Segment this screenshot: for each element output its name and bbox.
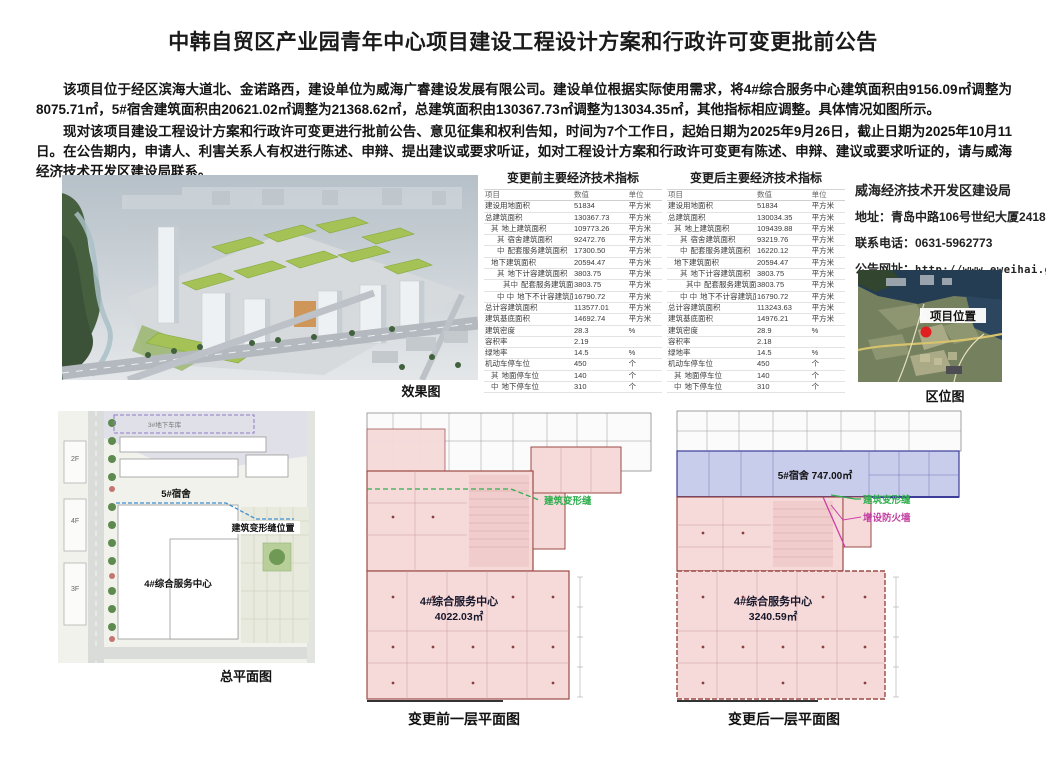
table-cell: 建筑基底面积 (667, 314, 756, 325)
table-title-after: 变更后主要经济技术指标 (667, 169, 845, 186)
table-row: 绿地率14.5% (484, 348, 662, 359)
table-row: 总计容建筑面积113577.01平方米 (484, 302, 662, 313)
siteplan-figure: 3#地下车库 2F 4F 3F 5#宿舍 (58, 411, 315, 663)
table-title-before: 变更前主要经济技术指标 (484, 169, 662, 186)
location-map-figure: 项目位置 (858, 270, 1002, 382)
table-cell: 建筑密度 (484, 325, 573, 336)
table-cell: 平方米 (628, 257, 662, 268)
table-before-body: 项目数值单位建设用地面积51834平方米总建筑面积130367.73平方米其地上… (484, 189, 662, 393)
table-cell: 中地下停车位 (484, 382, 573, 393)
joint-label-after: 建筑变形缝 (862, 494, 911, 506)
contact-department: 威海经济技术开发区建设局 (855, 180, 1043, 199)
table-cell: 平方米 (628, 269, 662, 280)
table-cell: 140 (756, 370, 811, 381)
table-cell: 16220.12 (756, 246, 811, 257)
table-cell: 28.3 (573, 325, 628, 336)
table-cell: 平方米 (628, 314, 662, 325)
table-cell: 310 (756, 382, 811, 393)
table-row: 绿地率14.5% (667, 348, 845, 359)
table-cell: 平方米 (628, 302, 662, 313)
project-location-label: 项目位置 (930, 309, 976, 323)
dorm-band-label: 5#宿舍 747.00㎡ (778, 469, 853, 482)
table-cell: 容积率 (484, 336, 573, 347)
table-cell: 其地上建筑面积 (484, 223, 573, 234)
siteplan-illustration: 3#地下车库 2F 4F 3F 5#宿舍 (58, 411, 315, 663)
service-center-area-after: 3240.59㎡ (749, 610, 798, 623)
location-map-illustration: 项目位置 (858, 270, 1002, 382)
service-center-area-before: 4022.03㎡ (435, 610, 484, 623)
table-row: 其地下计容建筑面积3803.75平方米 (484, 269, 662, 280)
table-row: 地下建筑面积20594.47平方米 (667, 257, 845, 268)
notice-paragraph-1: 该项目位于经区滨海大道北、金诺路西，建设单位为威海广睿建设发展有限公司。建设单位… (36, 80, 1012, 120)
table-cell: 2.19 (573, 336, 628, 347)
table-cell: % (811, 348, 845, 359)
table-cell: 113577.01 (573, 302, 628, 313)
table-cell: 建设用地面积 (484, 201, 573, 212)
table-row: 其宿舍建筑面积92472.76平方米 (484, 235, 662, 246)
table-cell: 109439.88 (756, 223, 811, 234)
table-cell: 51834 (756, 201, 811, 212)
table-cell: 个 (811, 382, 845, 393)
table-cell: 平方米 (811, 201, 845, 212)
table-cell: 130367.73 (573, 212, 628, 223)
table-row: 其地上建筑面积109773.26平方米 (484, 223, 662, 234)
table-cell: 平方米 (811, 291, 845, 302)
location-caption: 区位图 (905, 386, 985, 405)
table-cell: 其地下计容建筑面积 (667, 269, 756, 280)
table-cell: 平方米 (811, 212, 845, 223)
table-row: 其地上建筑面积109439.88平方米 (667, 223, 845, 234)
floorplan-after-caption: 变更后一层平面图 (709, 709, 859, 729)
table-cell: 14.5 (573, 348, 628, 359)
table-cell: 中地下停车位 (667, 382, 756, 393)
table-cell: 平方米 (811, 280, 845, 291)
table-row: 其中配套服务建筑面积3803.75平方米 (667, 280, 845, 291)
floorplan-after-figure: 5#宿舍 747.00㎡ (673, 407, 965, 707)
table-cell: 其地面停车位 (484, 370, 573, 381)
table-row: 其地下计容建筑面积3803.75平方米 (667, 269, 845, 280)
table-cell: 其地下计容建筑面积 (484, 269, 573, 280)
service-center-label-before: 4#综合服务中心 (420, 594, 498, 608)
table-cell: 109773.26 (573, 223, 628, 234)
table-cell: 130034.35 (756, 212, 811, 223)
siteplan-dorm-label: 5#宿舍 (161, 488, 191, 500)
table-cell: 中 中地下不计容建筑面积 (484, 291, 573, 302)
floorplan-before-illustration: 建筑变形缝 4#综合服务中心 4022.03㎡ (363, 407, 655, 707)
siteplan-center-label: 4#综合服务中心 (144, 578, 212, 590)
table-cell: 总建筑面积 (667, 212, 756, 223)
table-cell: 16790.72 (573, 291, 628, 302)
table-row: 中 中地下不计容建筑面积16790.72平方米 (484, 291, 662, 302)
table-cell: 92472.76 (573, 235, 628, 246)
service-center-label-after: 4#综合服务中心 (734, 594, 812, 608)
table-cell: 113243.63 (756, 302, 811, 313)
project-location-marker (921, 327, 932, 338)
notice-page: 中韩自贸区产业园青年中心项目建设工程设计方案和行政许可变更批前公告 该项目位于经… (0, 0, 1046, 767)
table-cell: 绿地率 (667, 348, 756, 359)
table-cell: 个 (628, 359, 662, 370)
table-cell: % (628, 325, 662, 336)
table-row: 建筑基底面积14976.21平方米 (667, 314, 845, 325)
table-cell: 平方米 (628, 223, 662, 234)
table-cell (811, 336, 845, 347)
siteplan-garage-label: 3#地下车库 (148, 420, 182, 429)
table-cell: 14976.21 (756, 314, 811, 325)
table-row: 其中配套服务建筑面积3803.75平方米 (484, 280, 662, 291)
table-cell: 其地上建筑面积 (667, 223, 756, 234)
siteplan-4f-label: 4F (71, 518, 79, 525)
table-row: 中地下停车位310个 (667, 382, 845, 393)
table-cell: 中 中地下不计容建筑面积 (667, 291, 756, 302)
siteplan-caption: 总平面图 (201, 666, 291, 685)
contact-phone: 联系电话：0631-5962773 (855, 234, 1043, 251)
table-row: 总建筑面积130367.73平方米 (484, 212, 662, 223)
table-row: 建筑密度28.9% (667, 325, 845, 336)
table-cell: 450 (756, 359, 811, 370)
table-cell: 建设用地面积 (667, 201, 756, 212)
table-cell: 450 (573, 359, 628, 370)
table-cell: 其宿舍建筑面积 (484, 235, 573, 246)
siteplan-2f-label: 2F (71, 456, 79, 463)
table-header-cell: 数值 (573, 190, 628, 201)
table-row: 其地面停车位140个 (667, 370, 845, 381)
table-cell: % (811, 325, 845, 336)
table-cell: 中配套服务建筑面积 (667, 246, 756, 257)
table-cell: 3803.75 (573, 269, 628, 280)
table-cell: 其宿舍建筑面积 (667, 235, 756, 246)
table-header-cell: 数值 (756, 190, 811, 201)
table-cell: 平方米 (628, 291, 662, 302)
table-header-row: 项目数值单位 (667, 190, 845, 201)
floorplan-after-illustration: 5#宿舍 747.00㎡ (673, 407, 965, 707)
table-cell: 总建筑面积 (484, 212, 573, 223)
table-row: 建设用地面积51834平方米 (667, 201, 845, 212)
table-cell: 14692.74 (573, 314, 628, 325)
table-cell: 机动车停车位 (484, 359, 573, 370)
table-row: 其地面停车位140个 (484, 370, 662, 381)
table-row: 总建筑面积130034.35平方米 (667, 212, 845, 223)
table-cell: 平方米 (811, 235, 845, 246)
table-cell: 2.18 (756, 336, 811, 347)
table-cell: 平方米 (628, 201, 662, 212)
table-cell: 平方米 (811, 257, 845, 268)
table-row: 机动车停车位450个 (667, 359, 845, 370)
floorplan-before-caption: 变更前一层平面图 (389, 709, 539, 729)
table-cell: 平方米 (628, 280, 662, 291)
siteplan-3f-label: 3F (71, 586, 79, 593)
table-cell (628, 336, 662, 347)
render-caption: 效果图 (386, 381, 456, 400)
table-cell: 其中配套服务建筑面积 (667, 280, 756, 291)
table-after-body: 项目数值单位建设用地面积51834平方米总建筑面积130034.35平方米其地上… (667, 189, 845, 393)
table-header-cell: 项目 (484, 190, 573, 201)
table-cell: 28.9 (756, 325, 811, 336)
table-header-cell: 单位 (628, 190, 662, 201)
table-cell: 3803.75 (573, 280, 628, 291)
floorplan-before-figure: 建筑变形缝 4#综合服务中心 4022.03㎡ (363, 407, 655, 707)
table-header-row: 项目数值单位 (484, 190, 662, 201)
table-cell: 绿地率 (484, 348, 573, 359)
page-title: 中韩自贸区产业园青年中心项目建设工程设计方案和行政许可变更批前公告 (0, 26, 1046, 56)
table-row: 机动车停车位450个 (484, 359, 662, 370)
table-row: 其宿舍建筑面积93219.76平方米 (667, 235, 845, 246)
table-row: 中配套服务建筑面积16220.12平方米 (667, 246, 845, 257)
table-cell: 总计容建筑面积 (484, 302, 573, 313)
table-cell: 建筑密度 (667, 325, 756, 336)
table-cell: 总计容建筑面积 (667, 302, 756, 313)
table-cell: 14.5 (756, 348, 811, 359)
table-cell: 3803.75 (756, 280, 811, 291)
table-row: 总计容建筑面积113243.63平方米 (667, 302, 845, 313)
table-header-cell: 单位 (811, 190, 845, 201)
aerial-render-illustration (62, 175, 478, 380)
joint-label-before: 建筑变形缝 (543, 495, 592, 507)
aerial-render-figure (62, 175, 478, 380)
table-cell: 平方米 (628, 235, 662, 246)
firewall-label: 增设防火墙 (863, 512, 911, 524)
table-cell: 其地面停车位 (667, 370, 756, 381)
siteplan-joint-label: 建筑变形缝位置 (231, 522, 294, 533)
table-cell: 20594.47 (756, 257, 811, 268)
table-cell: 容积率 (667, 336, 756, 347)
table-cell: 地下建筑面积 (484, 257, 573, 268)
table-cell: 个 (811, 370, 845, 381)
table-cell: 16790.72 (756, 291, 811, 302)
table-cell: 平方米 (811, 314, 845, 325)
table-row: 建筑基底面积14692.74平方米 (484, 314, 662, 325)
table-cell: 93219.76 (756, 235, 811, 246)
table-row: 中地下停车位310个 (484, 382, 662, 393)
table-cell: 建筑基底面积 (484, 314, 573, 325)
indicators-table-after: 变更后主要经济技术指标 项目数值单位建设用地面积51834平方米总建筑面积130… (667, 169, 845, 393)
table-row: 容积率2.19 (484, 336, 662, 347)
table-row: 建设用地面积51834平方米 (484, 201, 662, 212)
table-row: 地下建筑面积20594.47平方米 (484, 257, 662, 268)
table-row: 容积率2.18 (667, 336, 845, 347)
table-cell: 个 (628, 382, 662, 393)
table-cell: 平方米 (811, 246, 845, 257)
table-cell: 平方米 (628, 212, 662, 223)
table-cell: 平方米 (811, 223, 845, 234)
table-header-cell: 项目 (667, 190, 756, 201)
table-row: 建筑密度28.3% (484, 325, 662, 336)
table-cell: 51834 (573, 201, 628, 212)
table-cell: 机动车停车位 (667, 359, 756, 370)
table-cell: 地下建筑面积 (667, 257, 756, 268)
table-row: 中 中地下不计容建筑面积16790.72平方米 (667, 291, 845, 302)
table-row: 中配套服务建筑面积17300.50平方米 (484, 246, 662, 257)
contact-address: 地址：青岛中路106号世纪大厦2418室 (855, 208, 1043, 225)
table-cell: 中配套服务建筑面积 (484, 246, 573, 257)
indicators-table-before: 变更前主要经济技术指标 项目数值单位建设用地面积51834平方米总建筑面积130… (484, 169, 662, 393)
table-cell: 平方米 (811, 269, 845, 280)
table-cell: 17300.50 (573, 246, 628, 257)
table-cell: 平方米 (628, 246, 662, 257)
table-cell: 310 (573, 382, 628, 393)
table-cell: 其中配套服务建筑面积 (484, 280, 573, 291)
table-cell: 个 (811, 359, 845, 370)
table-cell: % (628, 348, 662, 359)
table-cell: 3803.75 (756, 269, 811, 280)
table-cell: 平方米 (811, 302, 845, 313)
table-cell: 20594.47 (573, 257, 628, 268)
table-cell: 个 (628, 370, 662, 381)
table-cell: 140 (573, 370, 628, 381)
